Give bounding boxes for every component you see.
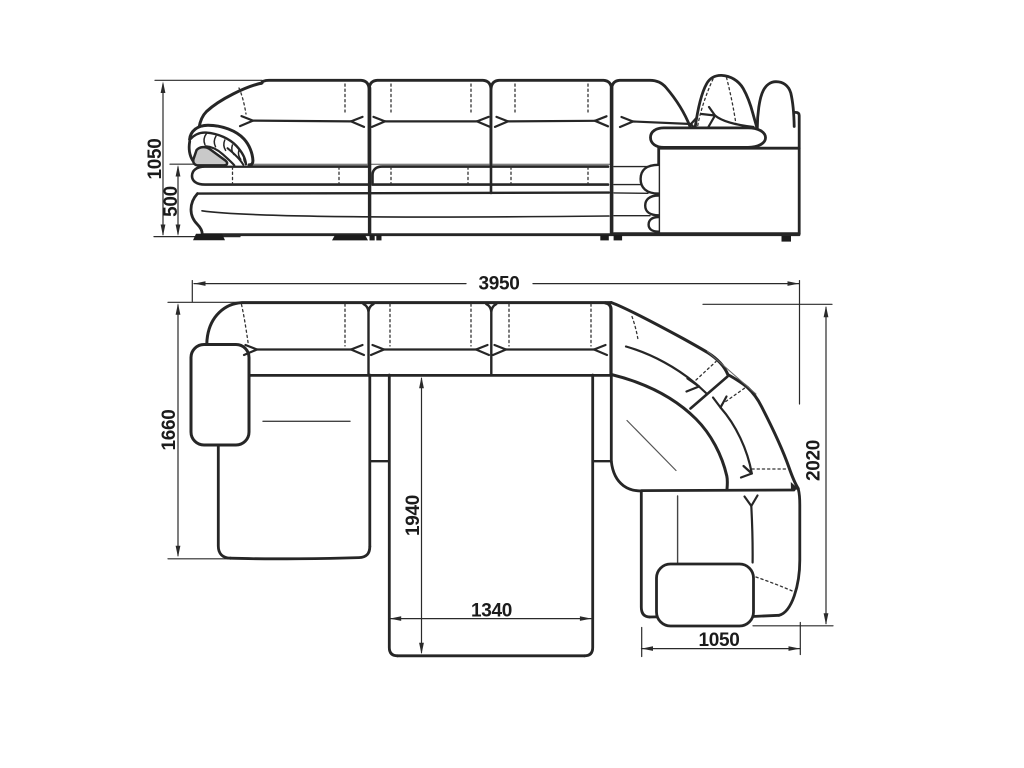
svg-text:1050: 1050 bbox=[698, 630, 739, 651]
svg-text:1940: 1940 bbox=[403, 495, 424, 536]
svg-text:2020: 2020 bbox=[804, 440, 825, 481]
svg-text:1050: 1050 bbox=[145, 138, 166, 179]
svg-text:3950: 3950 bbox=[478, 274, 519, 295]
svg-text:500: 500 bbox=[161, 186, 182, 217]
svg-text:1340: 1340 bbox=[471, 601, 512, 622]
svg-text:1660: 1660 bbox=[159, 409, 180, 450]
